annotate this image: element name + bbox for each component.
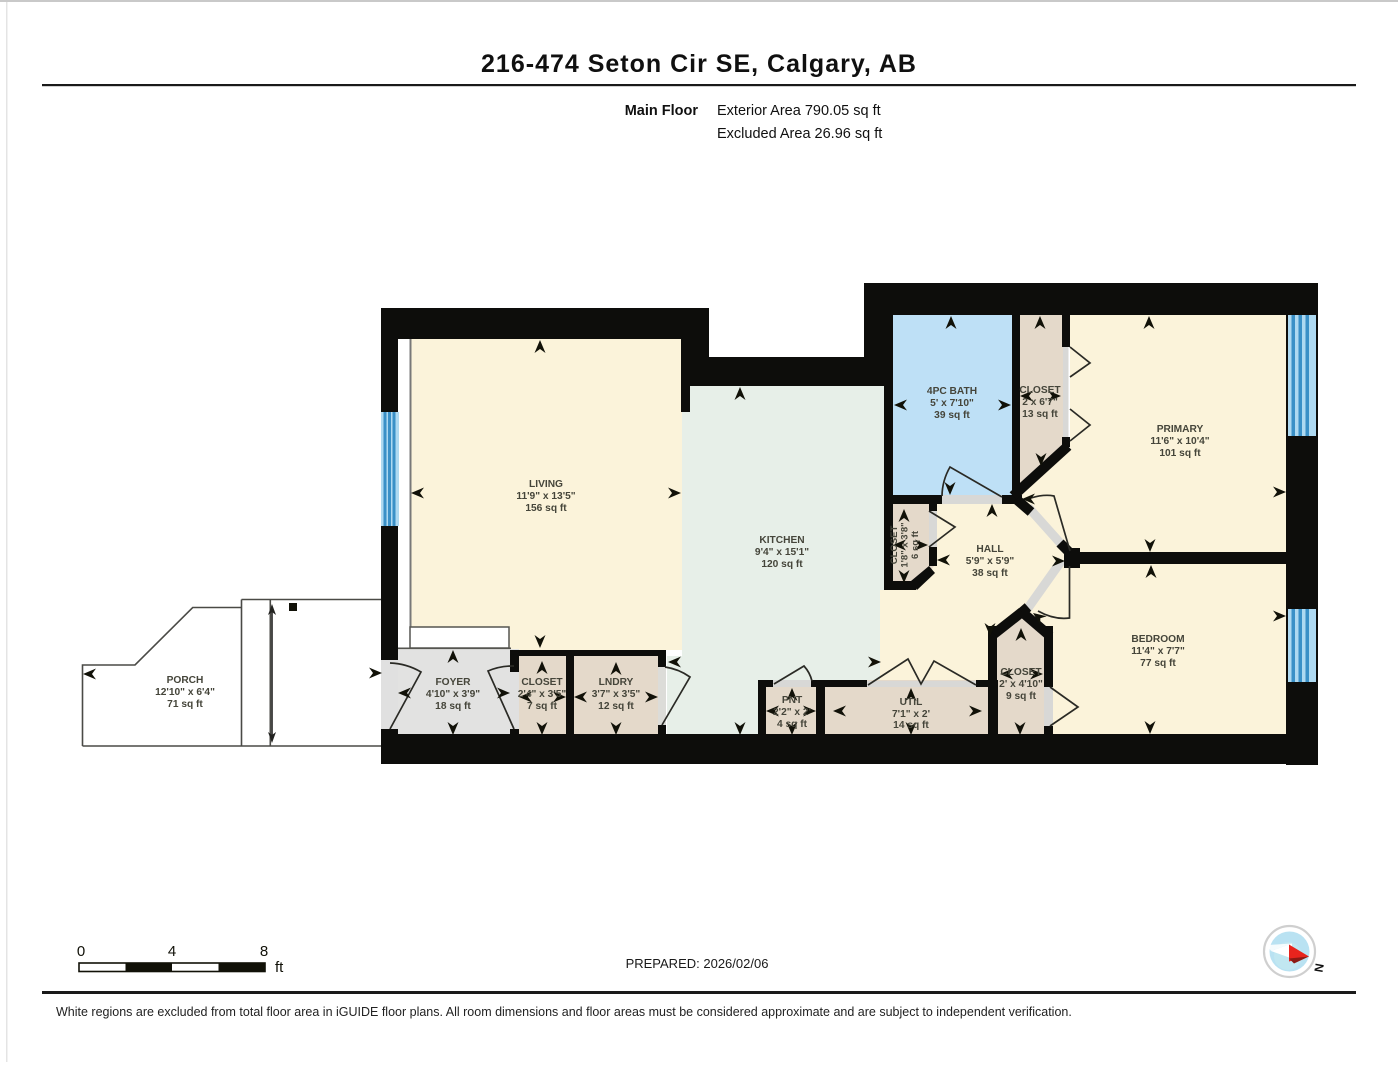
svg-text:1'8" x 3'8": 1'8" x 3'8" bbox=[900, 522, 911, 567]
svg-text:9'4" x 15'1": 9'4" x 15'1" bbox=[755, 547, 809, 558]
svg-text:216-474 Seton Cir SE, Calgary,: 216-474 Seton Cir SE, Calgary, AB bbox=[481, 50, 917, 78]
svg-text:0: 0 bbox=[77, 943, 85, 960]
svg-text:White regions are excluded fro: White regions are excluded from total fl… bbox=[56, 1005, 1072, 1019]
svg-text:13 sq ft: 13 sq ft bbox=[1022, 409, 1058, 420]
svg-text:120 sq ft: 120 sq ft bbox=[761, 559, 803, 570]
svg-text:PNT: PNT bbox=[782, 695, 803, 706]
svg-text:FOYER: FOYER bbox=[435, 677, 471, 688]
svg-text:6 sq ft: 6 sq ft bbox=[910, 530, 921, 559]
svg-text:5'9" x 5'9": 5'9" x 5'9" bbox=[966, 556, 1015, 567]
svg-text:ft: ft bbox=[275, 959, 284, 976]
svg-text:LNDRY: LNDRY bbox=[599, 677, 634, 688]
svg-text:9 sq ft: 9 sq ft bbox=[1006, 691, 1037, 702]
svg-text:CLOSET: CLOSET bbox=[1019, 385, 1061, 396]
svg-text:12'10" x 6'4": 12'10" x 6'4" bbox=[155, 687, 215, 698]
svg-text:5' x 7'10": 5' x 7'10" bbox=[930, 398, 974, 409]
svg-text:LIVING: LIVING bbox=[529, 479, 563, 490]
svg-text:18 sq ft: 18 sq ft bbox=[435, 701, 471, 712]
svg-text:2'2" x 2': 2'2" x 2' bbox=[773, 707, 811, 718]
svg-text:77 sq ft: 77 sq ft bbox=[1140, 658, 1176, 669]
svg-text:71 sq ft: 71 sq ft bbox=[167, 699, 203, 710]
svg-text:12 sq ft: 12 sq ft bbox=[598, 701, 634, 712]
svg-text:101 sq ft: 101 sq ft bbox=[1159, 448, 1201, 459]
svg-text:HALL: HALL bbox=[976, 544, 1003, 555]
svg-text:4'10" x 3'9": 4'10" x 3'9" bbox=[426, 689, 480, 700]
svg-text:3'7" x 3'5": 3'7" x 3'5" bbox=[592, 689, 641, 700]
svg-text:11'4" x 7'7": 11'4" x 7'7" bbox=[1131, 646, 1185, 657]
svg-text:CLOSET: CLOSET bbox=[889, 526, 900, 565]
svg-text:39 sq ft: 39 sq ft bbox=[934, 410, 970, 421]
svg-text:BEDROOM: BEDROOM bbox=[1131, 634, 1184, 645]
svg-text:14 sq ft: 14 sq ft bbox=[893, 720, 929, 731]
svg-text:4 sq ft: 4 sq ft bbox=[777, 719, 808, 730]
svg-text:Excluded Area 26.96 sq ft: Excluded Area 26.96 sq ft bbox=[717, 126, 882, 142]
svg-text:N: N bbox=[1311, 962, 1326, 973]
svg-text:PORCH: PORCH bbox=[167, 675, 204, 686]
svg-text:Main Floor: Main Floor bbox=[625, 103, 699, 119]
svg-text:CLOSET: CLOSET bbox=[1000, 667, 1042, 678]
svg-text:4PC BATH: 4PC BATH bbox=[927, 386, 977, 397]
svg-text:38 sq ft: 38 sq ft bbox=[972, 568, 1008, 579]
svg-text:2' x 4'10": 2' x 4'10" bbox=[999, 679, 1043, 690]
svg-text:2'4" x 3'5": 2'4" x 3'5" bbox=[518, 689, 567, 700]
svg-text:4: 4 bbox=[168, 943, 176, 960]
svg-text:11'6" x 10'4": 11'6" x 10'4" bbox=[1150, 436, 1209, 447]
svg-text:Exterior Area 790.05 sq ft: Exterior Area 790.05 sq ft bbox=[717, 103, 881, 119]
svg-text:PREPARED: 2026/02/06: PREPARED: 2026/02/06 bbox=[626, 956, 769, 971]
svg-text:CLOSET: CLOSET bbox=[521, 677, 563, 688]
svg-text:156 sq ft: 156 sq ft bbox=[525, 503, 567, 514]
svg-text:2 x 6'7": 2 x 6'7" bbox=[1022, 397, 1058, 408]
svg-text:UTIL: UTIL bbox=[900, 697, 923, 708]
svg-text:11'9" x 13'5": 11'9" x 13'5" bbox=[516, 491, 575, 502]
svg-text:7'1" x 2': 7'1" x 2' bbox=[892, 709, 930, 720]
svg-text:PRIMARY: PRIMARY bbox=[1157, 424, 1204, 435]
svg-text:8: 8 bbox=[260, 943, 268, 960]
svg-text:7 sq ft: 7 sq ft bbox=[527, 701, 558, 712]
svg-text:KITCHEN: KITCHEN bbox=[759, 535, 804, 546]
